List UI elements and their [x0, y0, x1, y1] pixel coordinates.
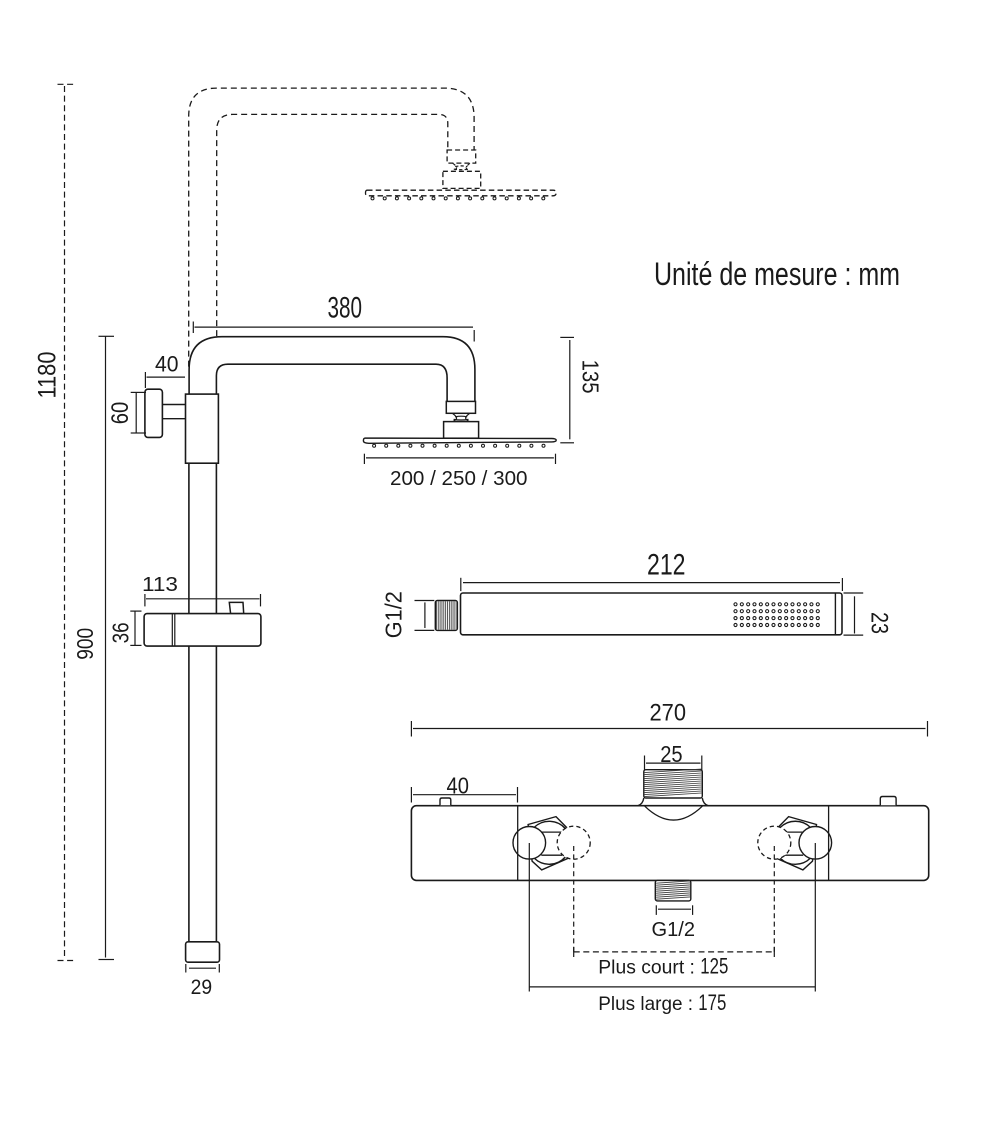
svg-text:Plus court : 125: Plus court : 125 [598, 954, 728, 979]
svg-text:40: 40 [155, 352, 179, 377]
svg-text:113: 113 [142, 573, 178, 596]
svg-text:212: 212 [647, 549, 686, 582]
svg-text:900: 900 [72, 628, 98, 660]
svg-text:200 / 250 / 300: 200 / 250 / 300 [390, 467, 528, 490]
svg-text:Plus large : 175: Plus large : 175 [598, 990, 726, 1015]
svg-text:Unité de mesure : mm: Unité de mesure : mm [654, 256, 900, 292]
svg-text:60: 60 [107, 402, 134, 425]
svg-text:29: 29 [191, 975, 213, 999]
svg-text:G1/2: G1/2 [652, 918, 696, 941]
svg-text:380: 380 [328, 292, 363, 325]
svg-text:1180: 1180 [34, 352, 62, 399]
svg-text:36: 36 [108, 622, 134, 643]
svg-text:G1/2: G1/2 [381, 591, 407, 638]
svg-text:135: 135 [578, 360, 604, 394]
svg-text:23: 23 [866, 612, 893, 634]
svg-text:40: 40 [447, 773, 469, 799]
svg-text:25: 25 [660, 741, 682, 767]
svg-text:270: 270 [650, 700, 687, 727]
